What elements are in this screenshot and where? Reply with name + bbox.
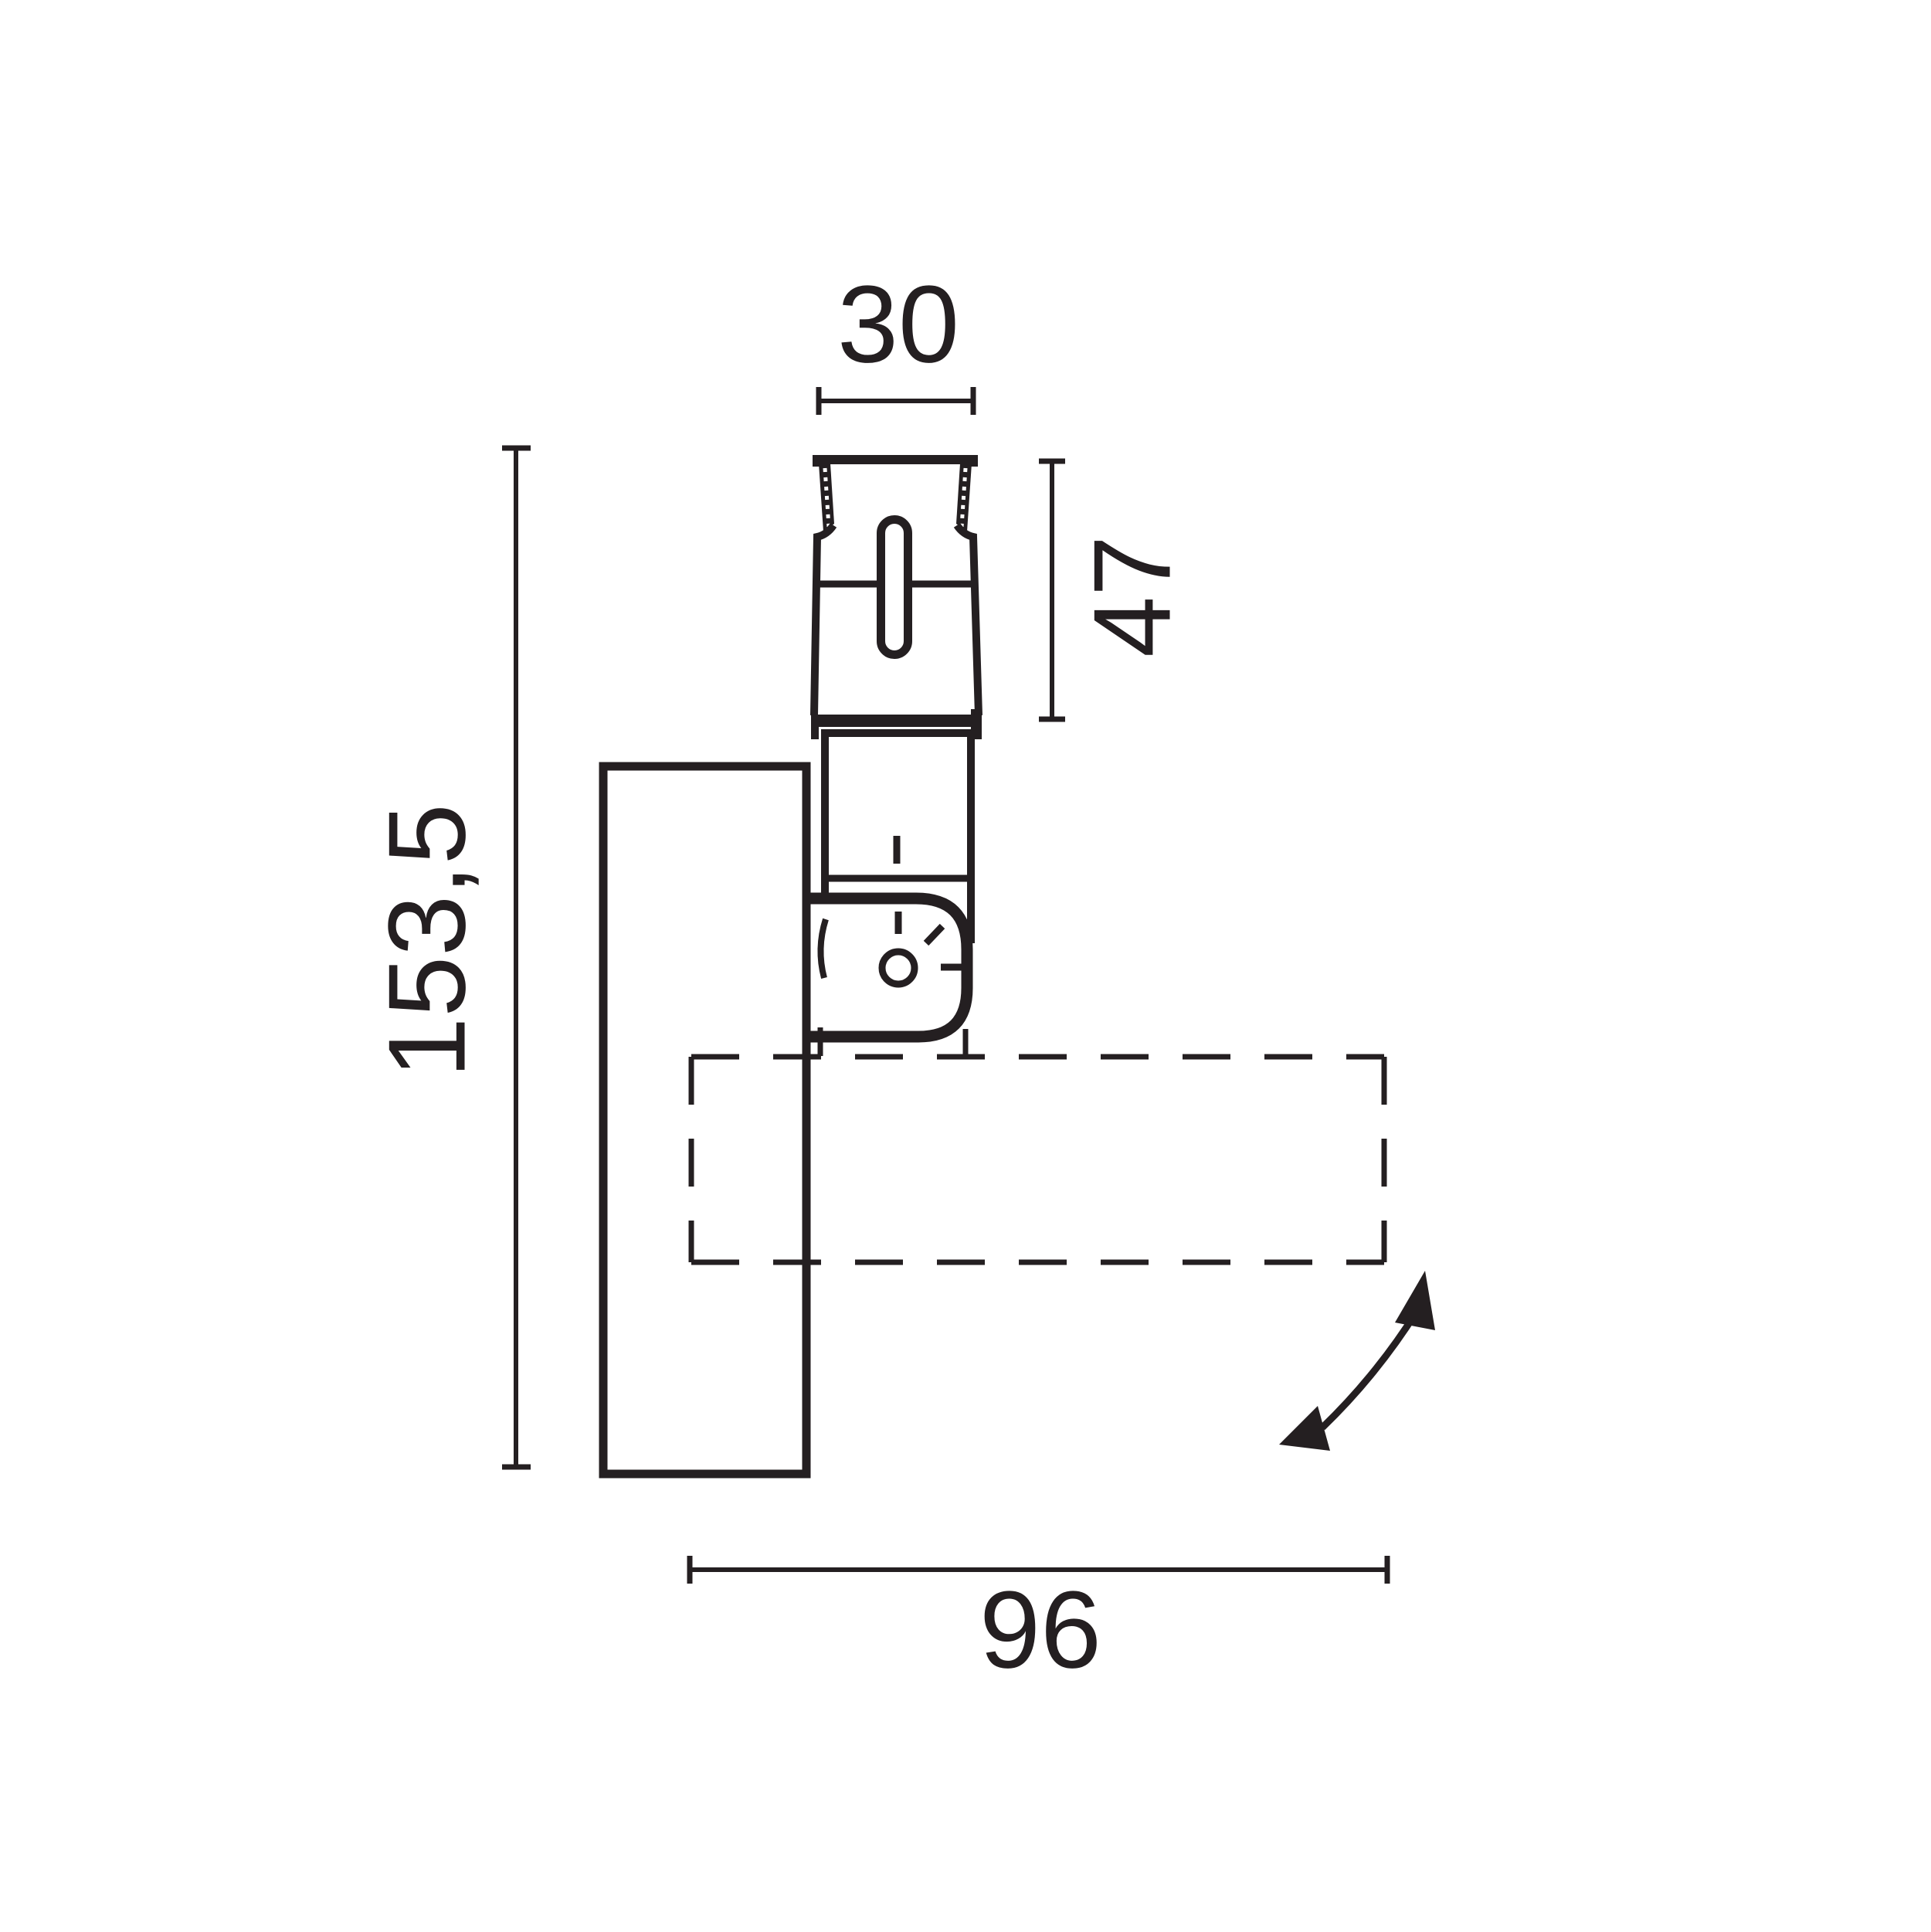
rotated-handle-dashed-outline <box>691 1057 1384 1262</box>
technical-drawing-canvas: 30 47 153,5 96 <box>0 0 1931 1932</box>
pivot-axis-circle <box>882 952 915 984</box>
window-handle-side-view-drawing: 30 47 153,5 96 <box>0 0 1931 1932</box>
dim-47-label: 47 <box>1071 535 1194 657</box>
dim-30-label: 30 <box>837 263 959 386</box>
grip-flange-lip-right <box>974 727 982 739</box>
dim-96-label: 96 <box>979 1569 1101 1692</box>
grip-left-side <box>814 525 833 715</box>
grip-flange-lip-left <box>811 727 819 739</box>
mounting-plate-outline <box>603 766 806 1474</box>
mounting-plate <box>603 766 806 1474</box>
grip-bottom-flange <box>811 715 982 727</box>
dim-153-label: 153,5 <box>366 803 489 1078</box>
rotation-arrow <box>1279 1271 1435 1451</box>
arrowhead-up-icon <box>1395 1271 1435 1330</box>
dimension-overall-height: 153,5 <box>366 448 531 1467</box>
dimension-grip-height: 47 <box>1039 461 1194 719</box>
dimension-handle-projection: 96 <box>690 1556 1387 1692</box>
rotation-arrow-arc <box>1322 1312 1417 1428</box>
arrowhead-down-left-icon <box>1279 1406 1330 1451</box>
dimension-grip-width: 30 <box>819 263 973 416</box>
pivot-joint <box>808 898 967 1058</box>
handle-grip <box>811 455 982 739</box>
grip-slot <box>881 520 908 655</box>
grip-right-side <box>957 525 979 715</box>
